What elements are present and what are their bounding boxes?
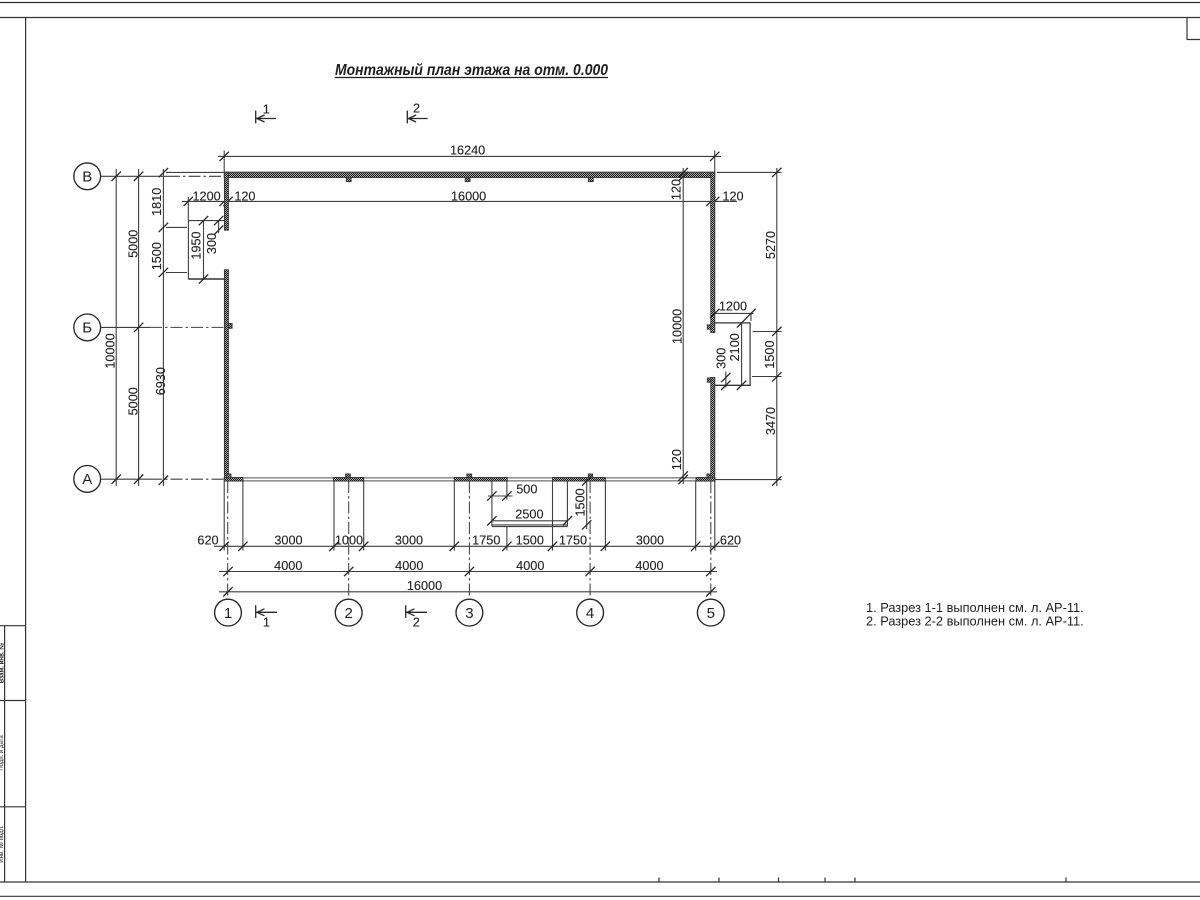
svg-text:1: 1 [224,605,232,622]
svg-text:1810: 1810 [150,188,164,216]
svg-text:120: 120 [234,189,255,203]
svg-text:1000: 1000 [335,533,363,547]
svg-text:620: 620 [720,533,741,547]
svg-text:2500: 2500 [515,507,543,521]
svg-text:1750: 1750 [559,533,587,547]
svg-text:120: 120 [670,449,684,470]
svg-text:3470: 3470 [764,407,778,435]
svg-text:4000: 4000 [516,559,544,573]
svg-text:А: А [82,471,92,488]
svg-text:6930: 6930 [154,367,168,395]
svg-text:300: 300 [714,348,728,369]
svg-text:2. Разрез 2-2 выполнен см. л.: 2. Разрез 2-2 выполнен см. л. АР-11. [866,614,1084,629]
svg-text:620: 620 [197,533,218,547]
svg-text:Б: Б [82,320,92,337]
svg-text:1: 1 [263,615,270,629]
svg-text:5: 5 [707,605,715,622]
svg-text:3000: 3000 [636,533,664,547]
svg-text:120: 120 [722,189,743,203]
svg-text:2: 2 [413,102,420,116]
svg-text:Подп. и дата: Подп. и дата [0,735,5,771]
svg-text:2: 2 [413,615,420,629]
svg-text:4000: 4000 [635,559,663,573]
svg-text:2100: 2100 [728,333,742,361]
svg-text:5270: 5270 [764,231,778,259]
svg-text:120: 120 [669,179,683,200]
svg-text:3000: 3000 [274,533,302,547]
svg-text:16000: 16000 [451,189,486,203]
svg-text:2: 2 [345,605,353,622]
svg-text:1950: 1950 [189,231,203,259]
svg-text:5000: 5000 [127,387,141,415]
svg-text:1500: 1500 [150,242,164,270]
svg-text:300: 300 [205,233,219,254]
svg-text:4: 4 [586,605,594,622]
svg-text:4000: 4000 [274,559,302,573]
svg-text:5000: 5000 [127,230,141,258]
svg-text:1500: 1500 [763,340,777,368]
svg-text:16240: 16240 [450,144,485,158]
svg-text:16000: 16000 [407,579,442,593]
svg-text:Монтажный план этажа на отм. 0: Монтажный план этажа на отм. 0.000 [335,62,608,79]
svg-text:В: В [82,169,92,186]
svg-text:1500: 1500 [573,488,587,516]
svg-text:4000: 4000 [395,559,423,573]
svg-text:1200: 1200 [719,299,747,313]
svg-text:1200: 1200 [192,189,220,203]
svg-text:10000: 10000 [670,309,684,344]
svg-text:1750: 1750 [472,533,500,547]
svg-text:Инв. № подл.: Инв. № подл. [0,825,5,863]
svg-text:500: 500 [516,483,537,497]
svg-text:1500: 1500 [516,533,544,547]
svg-text:3: 3 [465,605,473,622]
svg-text:3000: 3000 [395,533,423,547]
svg-text:Взам. инв. №: Взам. инв. № [0,643,5,684]
svg-text:1: 1 [263,103,270,117]
svg-text:10000: 10000 [103,333,117,368]
